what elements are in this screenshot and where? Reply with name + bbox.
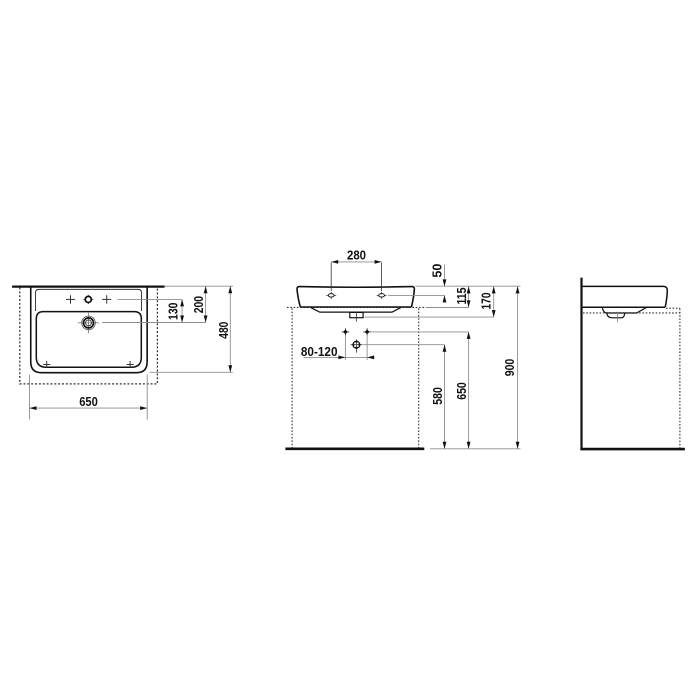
svg-text:130: 130 [166,303,181,320]
svg-text:80-120: 80-120 [301,344,338,359]
svg-text:280: 280 [347,247,366,262]
svg-text:170: 170 [479,293,494,310]
svg-text:580: 580 [430,387,445,405]
svg-text:650: 650 [454,382,469,400]
svg-text:115: 115 [454,288,469,305]
svg-text:50: 50 [429,264,444,278]
svg-text:650: 650 [79,394,98,409]
svg-text:200: 200 [191,296,206,313]
svg-text:900: 900 [502,359,517,377]
svg-text:480: 480 [216,322,231,339]
